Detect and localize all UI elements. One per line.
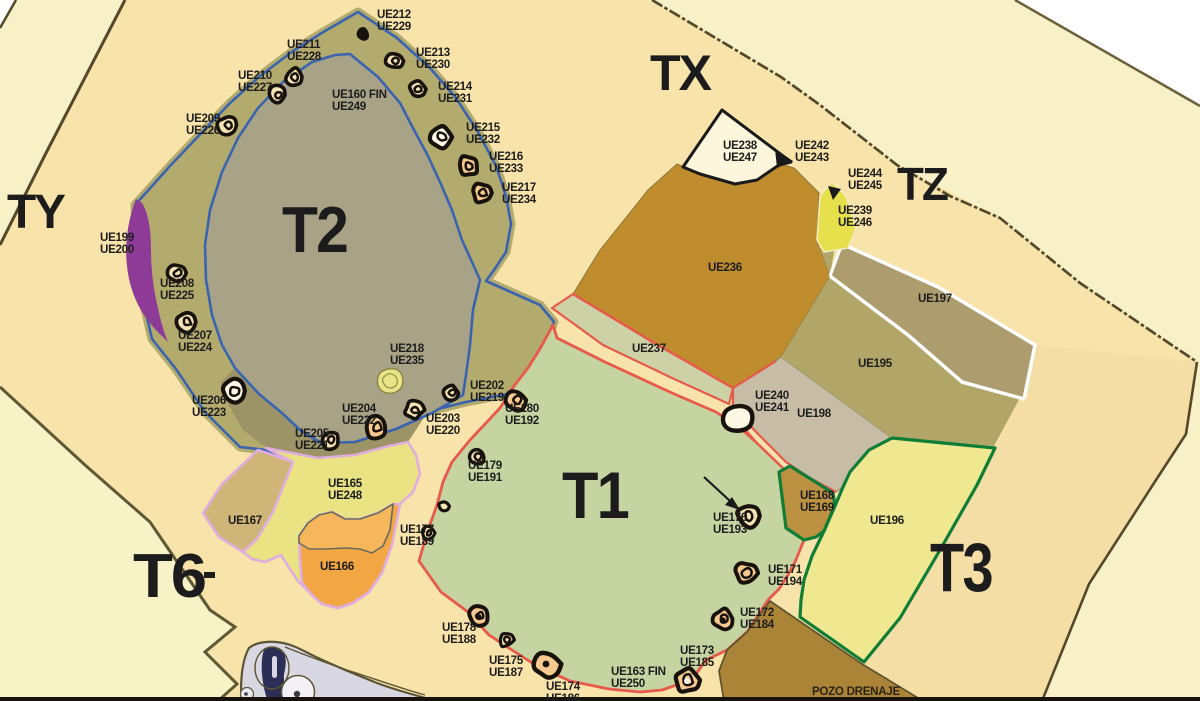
- svg-text:UE191: UE191: [468, 471, 503, 484]
- svg-text:UE237: UE237: [632, 342, 666, 355]
- svg-text:UE246: UE246: [838, 216, 873, 229]
- svg-text:UE219: UE219: [470, 391, 505, 404]
- svg-text:UE229: UE229: [377, 20, 412, 33]
- svg-text:UE188: UE188: [442, 633, 477, 646]
- svg-text:UE198: UE198: [797, 407, 832, 420]
- svg-text:UE192: UE192: [505, 414, 539, 427]
- svg-text:T6: T6: [133, 542, 206, 611]
- svg-text:UE241: UE241: [755, 401, 790, 414]
- svg-text:UE227: UE227: [238, 81, 272, 94]
- svg-text:UE196: UE196: [870, 514, 905, 527]
- svg-text:UE243: UE243: [795, 151, 830, 164]
- svg-text:T2: T2: [282, 193, 347, 266]
- svg-text:UE185: UE185: [680, 656, 715, 669]
- svg-text:UE245: UE245: [848, 179, 883, 192]
- svg-text:T1: T1: [562, 458, 628, 532]
- svg-text:UE228: UE228: [287, 50, 322, 63]
- svg-text:UE194: UE194: [768, 575, 803, 588]
- svg-text:UE224: UE224: [178, 341, 213, 354]
- svg-text:UE225: UE225: [160, 289, 195, 302]
- svg-text:TX: TX: [650, 45, 712, 101]
- svg-text:UE193: UE193: [713, 523, 748, 536]
- svg-text:UE226: UE226: [186, 124, 221, 137]
- svg-text:UE221: UE221: [295, 439, 330, 452]
- svg-text:UE200: UE200: [100, 243, 134, 256]
- svg-text:UE220: UE220: [426, 424, 460, 437]
- svg-text:UE249: UE249: [332, 100, 367, 113]
- svg-text:UE233: UE233: [489, 162, 524, 175]
- svg-text:UE197: UE197: [918, 292, 952, 305]
- svg-text:UE247: UE247: [723, 151, 757, 164]
- svg-text:POZO DRENAJE: POZO DRENAJE: [812, 685, 900, 698]
- svg-text:TZ: TZ: [897, 158, 948, 210]
- svg-text:UE234: UE234: [502, 193, 537, 206]
- svg-text:UE166: UE166: [320, 560, 355, 573]
- svg-text:UE187: UE187: [489, 666, 523, 679]
- svg-text:UE223: UE223: [192, 406, 227, 419]
- svg-text:UE189: UE189: [400, 535, 435, 548]
- svg-text:UE169: UE169: [800, 501, 835, 514]
- svg-text:UE222: UE222: [342, 414, 376, 427]
- svg-text:UE230: UE230: [416, 58, 450, 71]
- svg-text:UE184: UE184: [740, 618, 775, 631]
- svg-text:UE186: UE186: [546, 692, 581, 701]
- svg-text:T3: T3: [930, 529, 992, 606]
- svg-text:UE250: UE250: [611, 677, 645, 690]
- svg-text:UE232: UE232: [466, 133, 500, 146]
- svg-text:UE235: UE235: [390, 354, 425, 367]
- svg-text:UE248: UE248: [328, 489, 363, 502]
- svg-text:UE195: UE195: [858, 357, 893, 370]
- svg-text:TY: TY: [7, 186, 66, 239]
- svg-text:UE231: UE231: [438, 92, 473, 105]
- svg-text:UE236: UE236: [708, 261, 743, 274]
- svg-text:UE167: UE167: [228, 514, 262, 527]
